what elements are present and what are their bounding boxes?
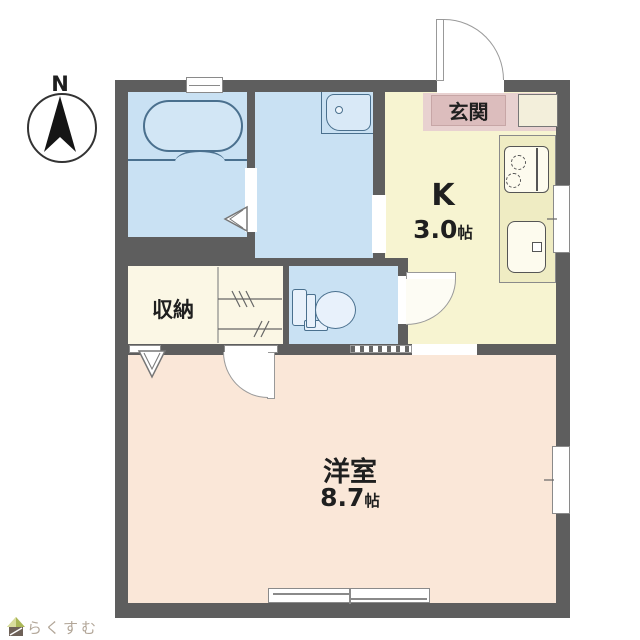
kitchen-room-opening: [412, 344, 477, 355]
shoe-cabinet: [518, 94, 558, 127]
stove-divider: [536, 148, 538, 191]
washroom-kitchen-opening: [372, 195, 386, 253]
stove-burner-icon: [511, 155, 526, 170]
washbasin-faucet: [335, 106, 343, 114]
kitchen-sink-drain: [532, 242, 542, 252]
closet-left-opening: [129, 345, 161, 353]
entrance-door-opening: [437, 80, 504, 93]
wall-toilet-top: [385, 258, 408, 266]
washbasin: [326, 94, 371, 131]
room-door-leaf: [267, 352, 275, 399]
room-bottom-window: [268, 588, 430, 603]
logo-house-icon: [7, 617, 25, 636]
bathtub: [143, 100, 243, 152]
room-side-window: [552, 446, 570, 514]
western-room-size: 8.7帖: [295, 483, 405, 512]
kitchen-window: [553, 185, 570, 253]
north-label: N: [44, 72, 76, 96]
entrance-door-leaf: [436, 19, 444, 81]
bath-window: [186, 77, 223, 93]
kitchen-size: 3.0帖: [398, 215, 488, 244]
kitchen-label: K: [413, 178, 473, 213]
closet-label: 収納: [133, 294, 213, 324]
bath-washroom-opening: [245, 168, 257, 232]
entrance-door-arc: [444, 19, 504, 80]
entrance-label: 玄関: [431, 95, 506, 126]
toilet-vent-strip: [350, 345, 412, 353]
stove-burner-icon: [506, 173, 521, 188]
site-logo-text: らくすむ: [27, 617, 99, 638]
compass-rose: [27, 93, 97, 163]
toilet-bowl: [315, 291, 356, 329]
floor-plan-canvas: N 玄関: [0, 0, 640, 640]
